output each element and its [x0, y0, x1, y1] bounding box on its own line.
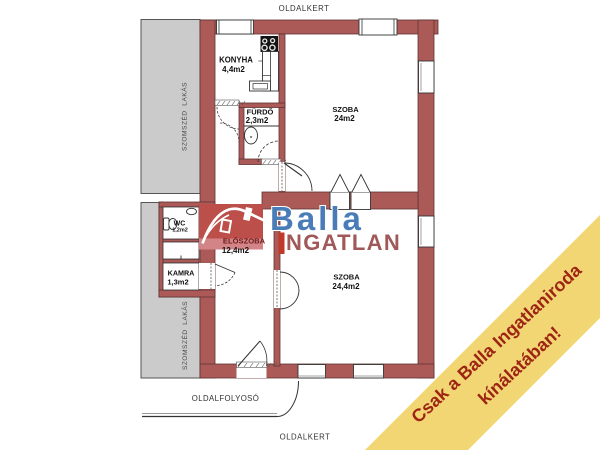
svg-text:WC: WC	[174, 221, 186, 228]
svg-text:OLDALFOLYOSÓ: OLDALFOLYOSÓ	[192, 394, 259, 403]
svg-text:12,4m2: 12,4m2	[222, 246, 250, 255]
svg-text:KONYHA: KONYHA	[219, 56, 253, 65]
svg-text:SZOMSZÉD LAKÁS: SZOMSZÉD LAKÁS	[180, 301, 189, 370]
svg-text:SZOBA: SZOBA	[333, 273, 360, 282]
svg-text:2,3m2: 2,3m2	[246, 116, 269, 125]
svg-text:OLDALKERT: OLDALKERT	[280, 433, 331, 442]
svg-text:1,3m2: 1,3m2	[167, 278, 188, 287]
svg-text:KAMRA: KAMRA	[168, 269, 195, 278]
svg-text:ELŐSZOBA: ELŐSZOBA	[223, 237, 266, 246]
svg-text:SZOMSZÉD LAKÁS: SZOMSZÉD LAKÁS	[180, 82, 189, 151]
svg-text:SZOBA: SZOBA	[332, 105, 359, 114]
svg-text:24,4m2: 24,4m2	[332, 282, 360, 291]
svg-text:OLDALKERT: OLDALKERT	[279, 4, 330, 13]
svg-text:1,2m2: 1,2m2	[172, 228, 188, 234]
svg-text:NGATLAN: NGATLAN	[286, 230, 401, 255]
svg-text:4,4m2: 4,4m2	[222, 65, 245, 74]
svg-text:24m2: 24m2	[334, 114, 355, 123]
